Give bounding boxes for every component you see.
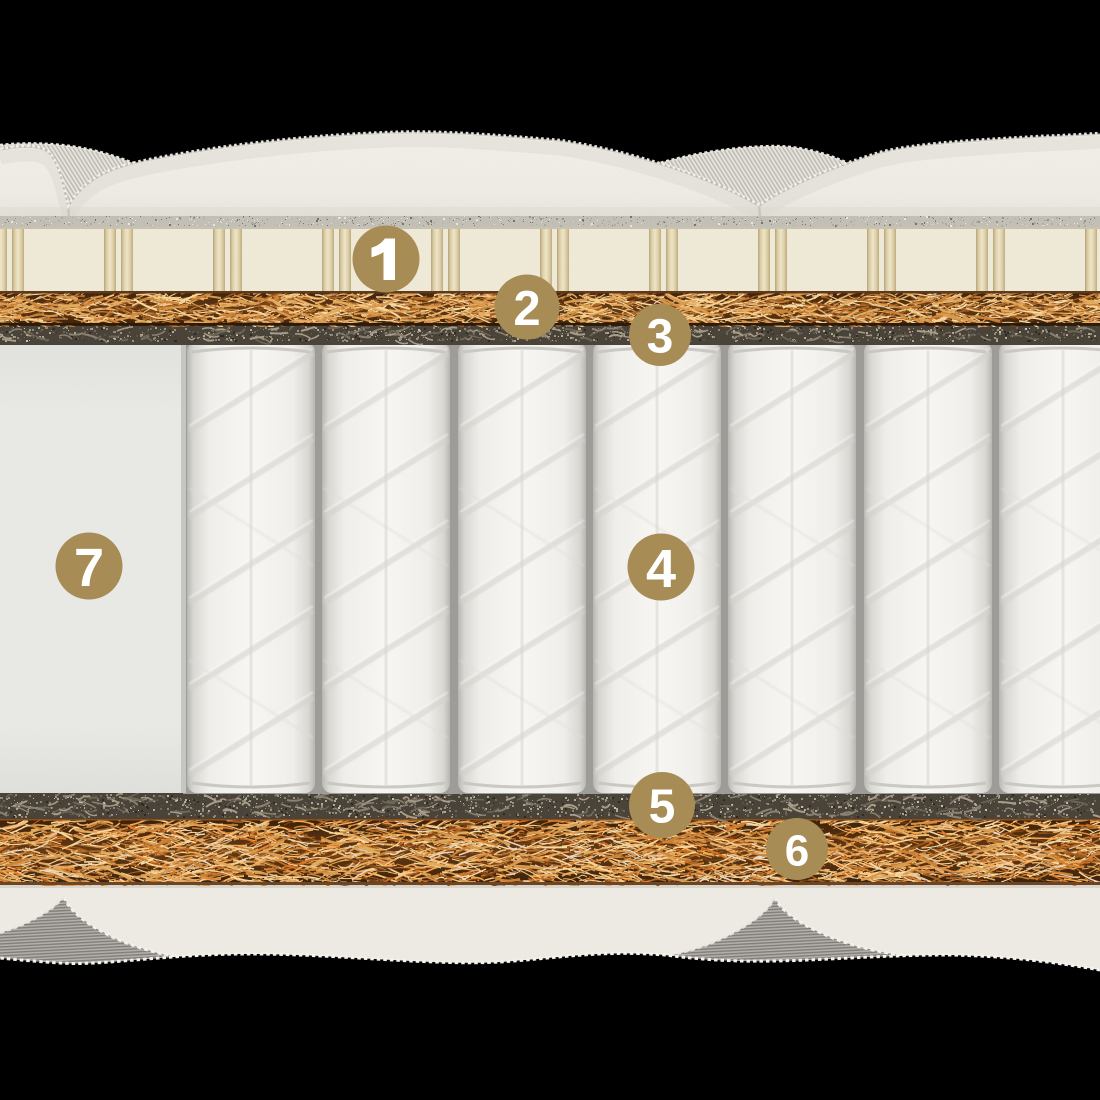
svg-text:3: 3 [647, 311, 674, 364]
svg-text:2: 2 [513, 282, 540, 336]
svg-text:7: 7 [74, 538, 104, 598]
svg-text:6: 6 [785, 827, 809, 876]
svg-text:4: 4 [646, 539, 676, 599]
svg-text:5: 5 [649, 781, 676, 834]
